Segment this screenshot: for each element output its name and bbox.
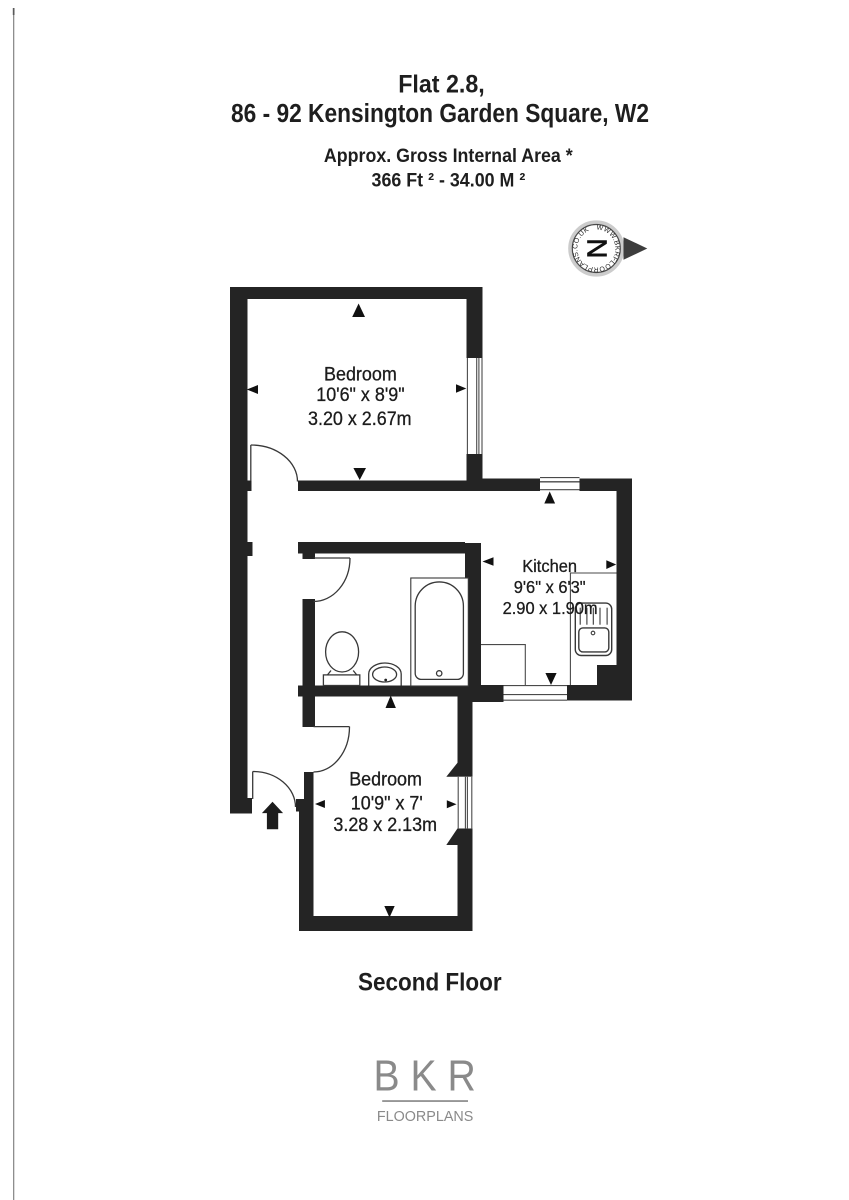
svg-text:2.90 x 1.90m: 2.90 x 1.90m	[503, 599, 598, 619]
svg-text:10'9" x 7': 10'9" x 7'	[351, 792, 423, 814]
svg-text:Second Floor: Second Floor	[358, 968, 502, 996]
svg-text:B K R: B K R	[373, 1050, 475, 1100]
svg-text:9'6" x 6'3": 9'6" x 6'3"	[514, 577, 586, 597]
svg-text:Flat 2.8,: Flat 2.8,	[398, 71, 485, 99]
svg-text:3.28 x 2.13m: 3.28 x 2.13m	[333, 813, 437, 835]
svg-text:10'6" x 8'9": 10'6" x 8'9"	[316, 383, 404, 405]
svg-text:3.20 x 2.67m: 3.20 x 2.67m	[308, 407, 412, 429]
svg-text:366 Ft ² - 34.00 M ²: 366 Ft ² - 34.00 M ²	[372, 169, 526, 191]
svg-text:Bedroom: Bedroom	[324, 363, 397, 385]
svg-text:Bedroom: Bedroom	[349, 768, 422, 790]
svg-text:Kitchen: Kitchen	[522, 557, 577, 577]
svg-text:N: N	[582, 238, 613, 258]
svg-text:86 - 92 Kensington Garden Squa: 86 - 92 Kensington Garden Square, W2	[231, 100, 649, 129]
svg-text:Approx. Gross Internal Area *: Approx. Gross Internal Area *	[324, 144, 574, 166]
svg-text:FLOORPLANS: FLOORPLANS	[377, 1109, 473, 1125]
